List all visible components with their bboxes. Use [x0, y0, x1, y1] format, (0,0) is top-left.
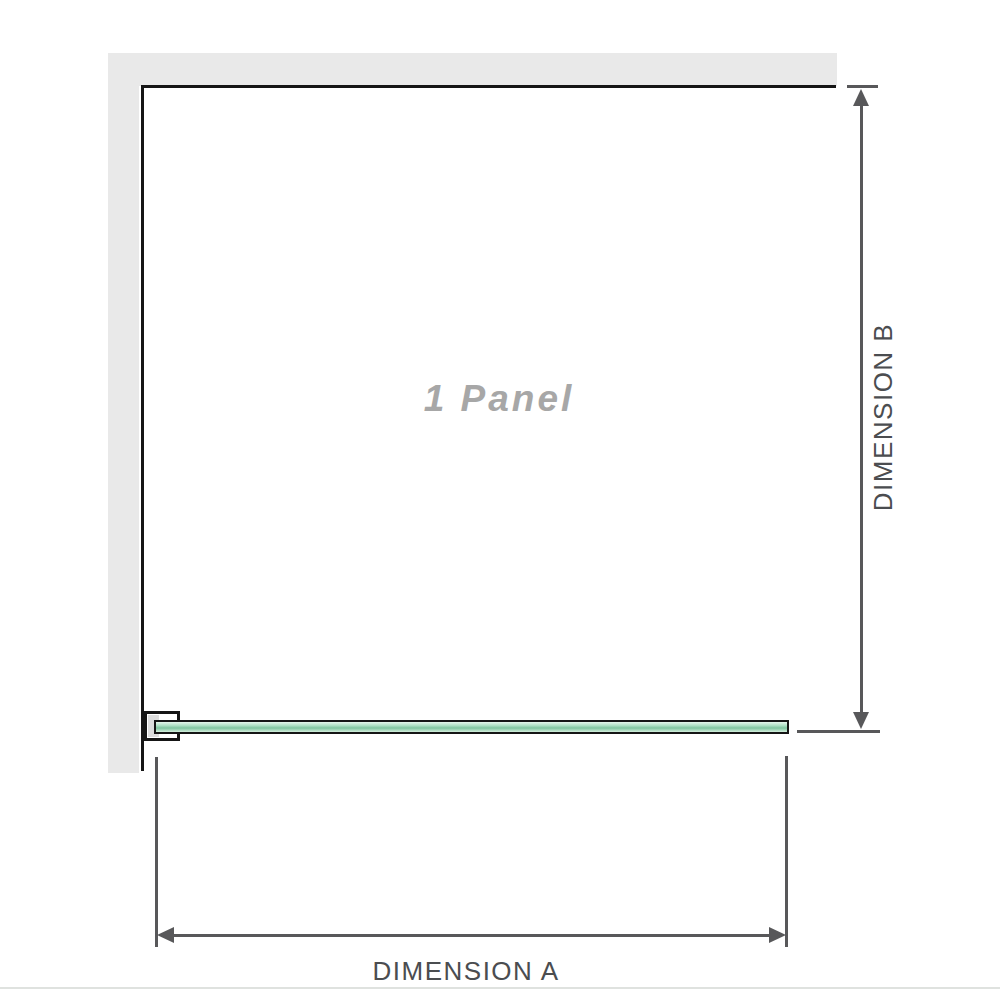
dimension-b-bottom-tick [797, 730, 880, 733]
dimension-a-line [170, 934, 772, 937]
glass-panel [154, 720, 789, 734]
panel-count-label: 1 Panel [424, 378, 575, 420]
diagram-canvas: 1 Panel DIMENSION B DIMENSION A [0, 0, 1000, 1000]
dimension-a-right-extension [785, 756, 788, 947]
wall-left-edge-line [141, 85, 144, 771]
arrow-down-icon [853, 712, 869, 729]
wall-left [108, 53, 139, 773]
dimension-b-line [860, 98, 863, 718]
wall-top-edge-line [141, 85, 836, 88]
arrow-right-icon [769, 927, 786, 943]
bottom-separator-line [0, 987, 1000, 989]
dimension-b-label: DIMENSION B [868, 323, 899, 511]
dimension-a-left-extension [155, 757, 158, 947]
arrow-left-icon [157, 927, 174, 943]
dimension-a-label: DIMENSION A [373, 956, 560, 987]
dimension-b-top-tick [847, 85, 878, 88]
arrow-up-icon [853, 89, 869, 106]
wall-top [108, 53, 837, 86]
